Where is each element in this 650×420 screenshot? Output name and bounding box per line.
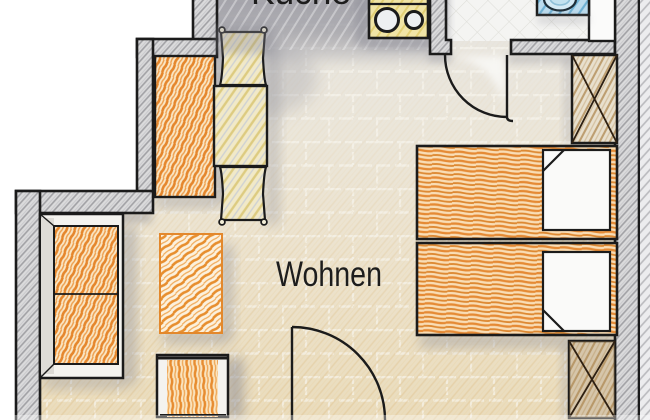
svg-text:Wohnen: Wohnen <box>276 255 382 294</box>
svg-text:Küche: Küche <box>251 0 351 12</box>
